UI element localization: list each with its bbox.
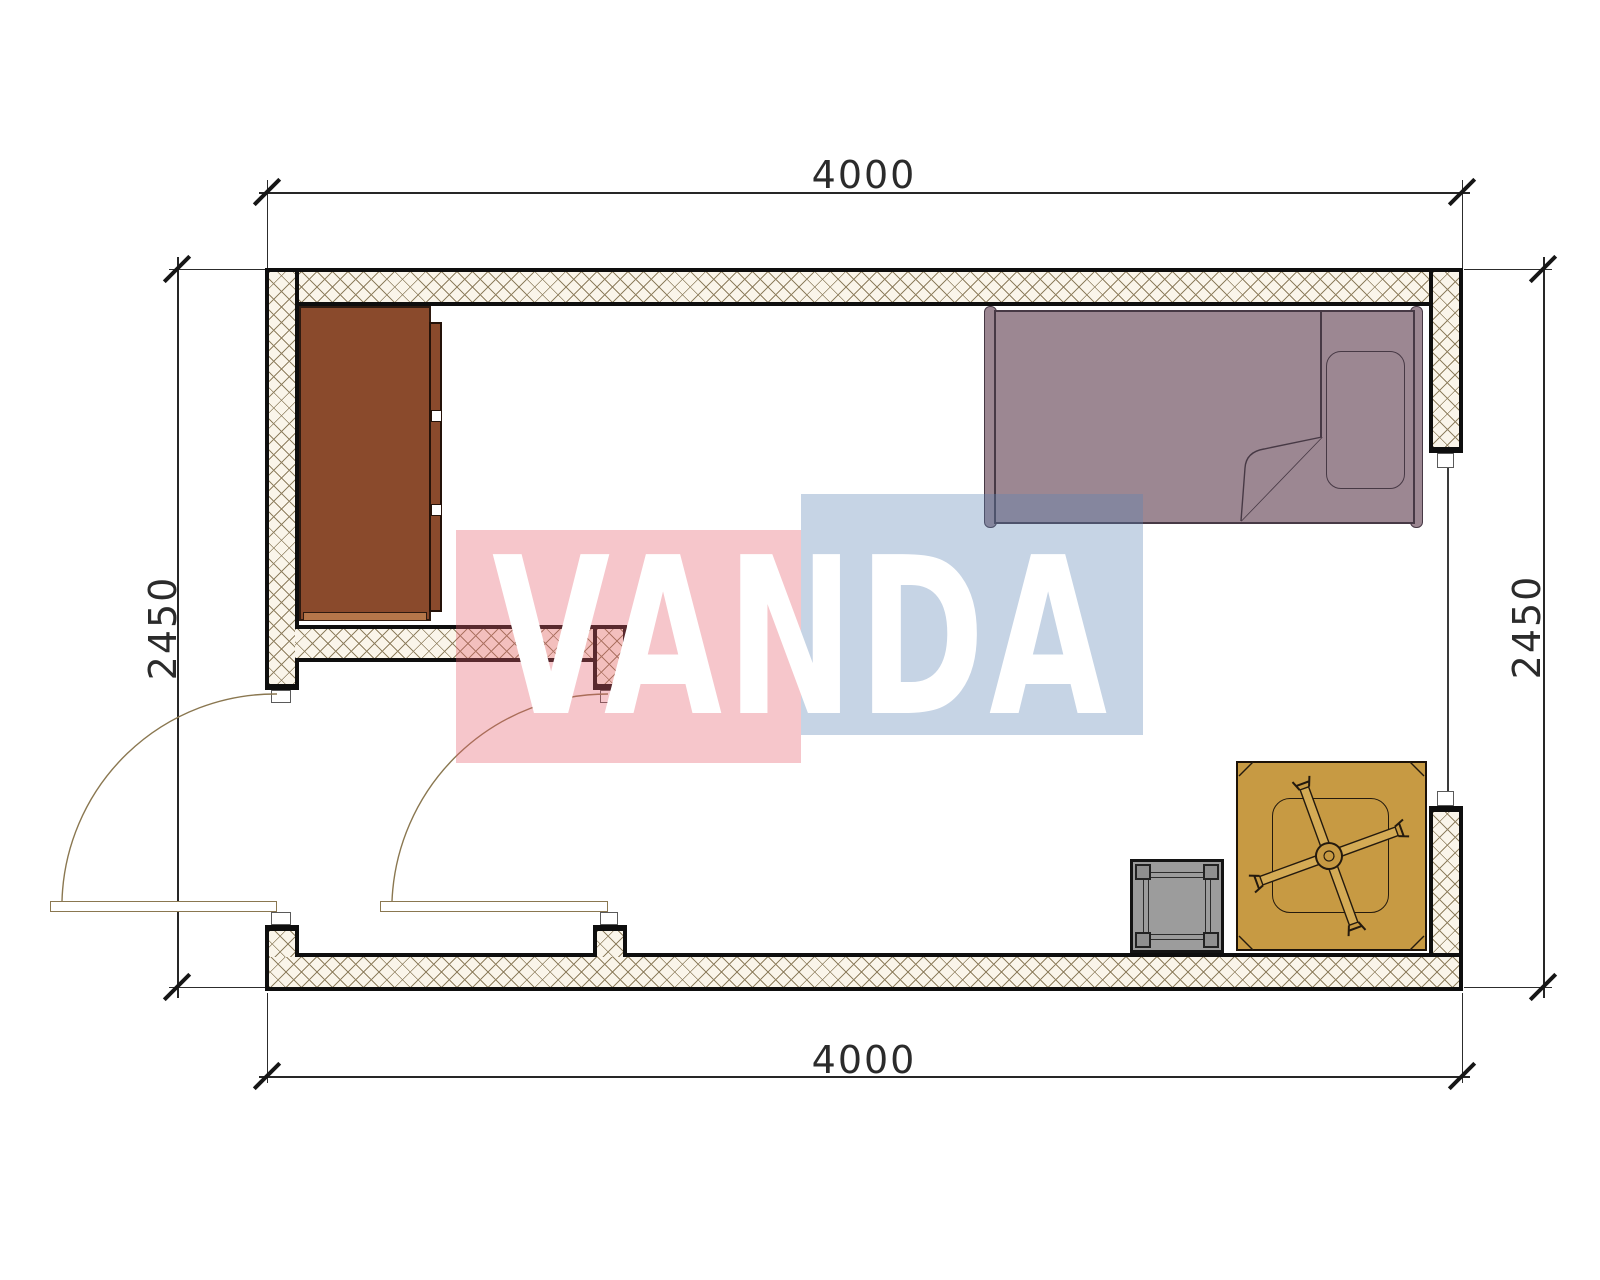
table-leg	[1135, 864, 1151, 880]
entry-door-leaf	[50, 901, 277, 912]
dimension-label-left: 2450	[143, 568, 183, 688]
table-leg	[1203, 864, 1219, 880]
table-leg	[1203, 932, 1219, 948]
dimension-label-top: 4000	[764, 155, 964, 195]
floor-mat-inner-border	[1272, 798, 1389, 913]
door-jamb	[271, 912, 291, 925]
extension-line-bottom-left	[267, 993, 268, 1083]
dimension-label-right: 2450	[1507, 567, 1547, 687]
floor-plan-canvas: 4000 4000 2450 2450	[0, 0, 1600, 1280]
wall-stub-right	[593, 925, 627, 957]
watermark-text: VANDA	[492, 530, 1111, 748]
bed-sheet-line	[1320, 312, 1322, 438]
dresser-drawer-strip	[429, 322, 442, 612]
drawer-handle-gap	[431, 504, 442, 516]
side-table-frame	[1148, 877, 1206, 935]
entry-door-swing-arc	[62, 694, 277, 901]
dresser-front-edge	[303, 612, 427, 621]
window-line	[1447, 468, 1449, 791]
side-table	[1130, 859, 1224, 953]
window-jamb	[1437, 791, 1454, 806]
dresser	[299, 306, 431, 621]
wall-left	[265, 268, 299, 690]
extension-line-left-top	[169, 269, 266, 270]
extension-line-left-bottom	[169, 987, 266, 988]
pillow	[1326, 351, 1405, 489]
door-jamb	[600, 912, 618, 925]
wall-stub-left	[265, 925, 299, 957]
wall-right-upper	[1429, 268, 1463, 453]
interior-door-leaf	[380, 901, 608, 912]
door-jamb	[271, 690, 291, 703]
wall-top	[265, 268, 1463, 306]
drawer-handle-gap	[431, 410, 442, 422]
table-leg	[1135, 932, 1151, 948]
window-jamb	[1437, 453, 1454, 468]
wall-bottom	[265, 953, 1463, 991]
dimension-label-bottom: 4000	[764, 1040, 964, 1080]
extension-line-bottom-right	[1462, 993, 1463, 1083]
